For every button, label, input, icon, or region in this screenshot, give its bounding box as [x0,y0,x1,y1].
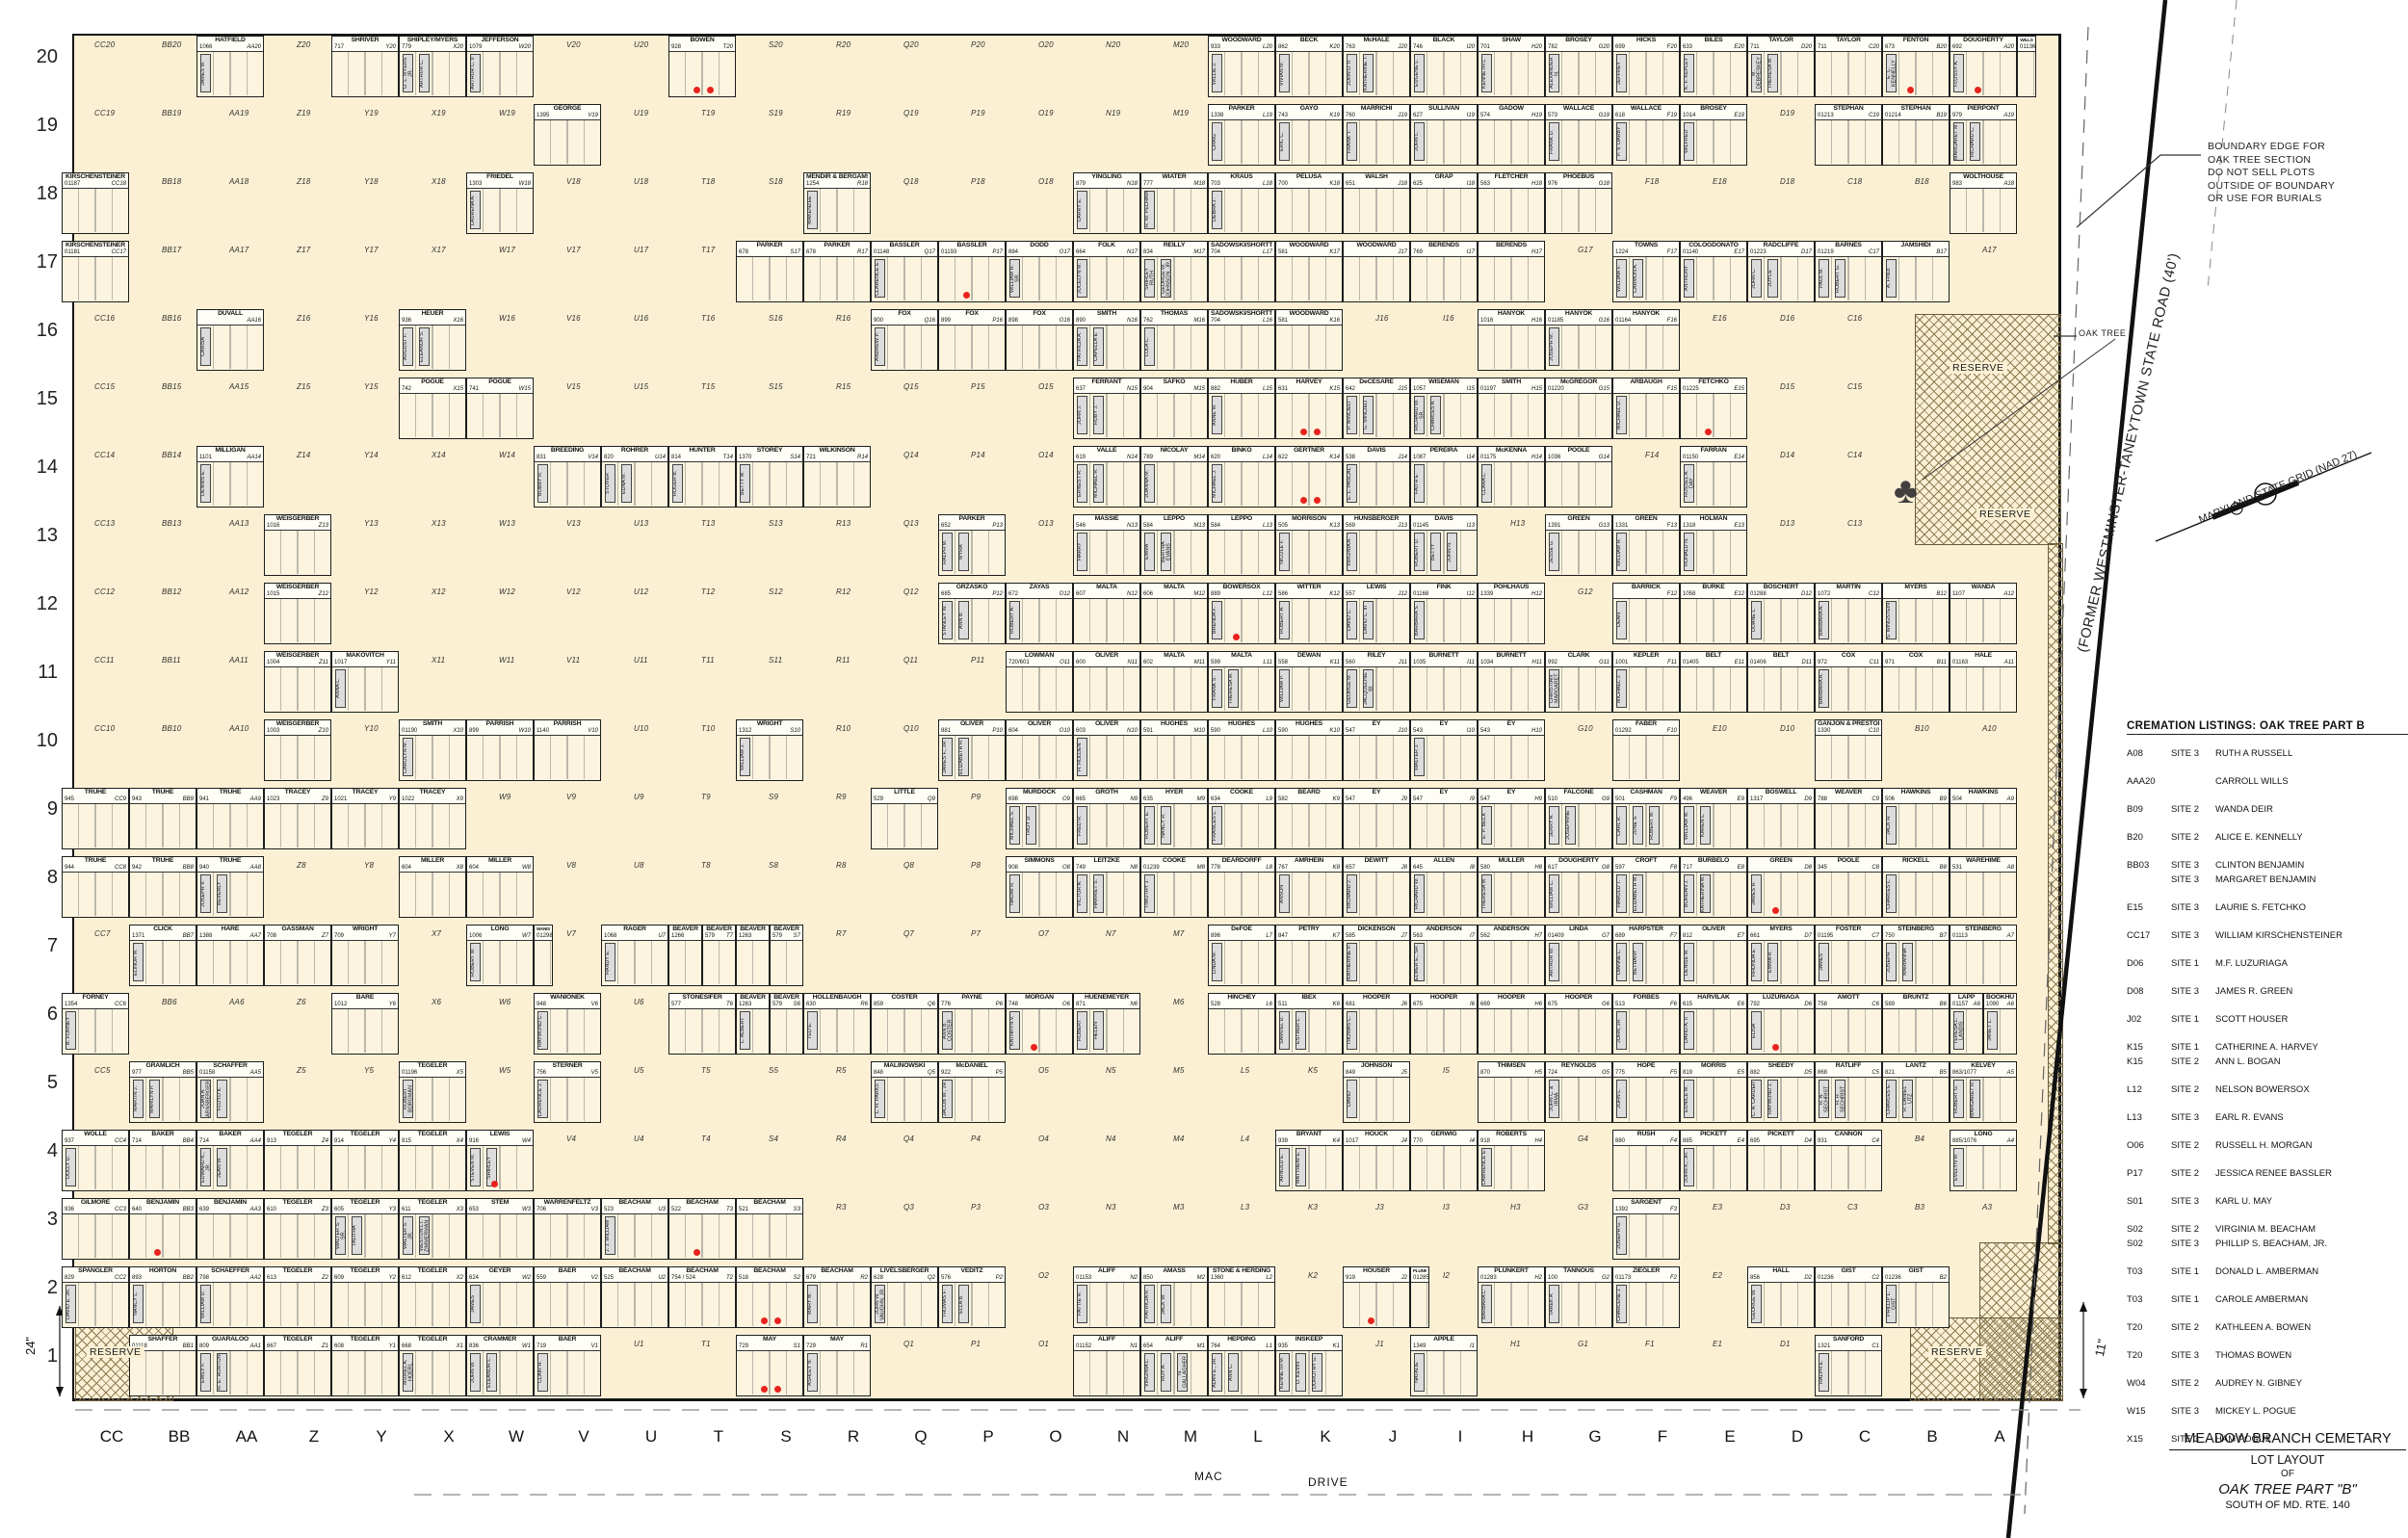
plot-grid-reference: I9 [1470,796,1475,803]
plot-grid-reference: G16 [1599,318,1610,325]
cell-label: G17 [1578,246,1593,254]
plot-grid-reference: CC9 [115,796,126,803]
plot-family-name: WEISGERBER [267,515,328,523]
plot-block: WOODWARD933L20WILLIE J. [1208,36,1275,97]
plot-grid-reference: F9 [1670,796,1677,803]
plot-family-name: GREEN [1615,515,1677,523]
cell-label: BB11 [162,656,181,665]
plot-number: 1371 [132,933,144,940]
plot-number: 1330 [1818,728,1830,735]
plot-block: SMITH890N16PATRICIA A.CAPELLA E. [1073,309,1140,371]
plot-block: IBEX511K6SAMUEL D.ESTHER L. [1275,993,1343,1055]
plot-grid-reference: D2 [1804,1275,1812,1282]
occupant-strip: DENNIS E. [200,464,211,503]
plot-block: DOUGHERTY617G8WILLIAM C. [1545,856,1612,918]
occupant-strip: RALPH M. [942,533,953,571]
plot-family-name: MULLER [1480,857,1542,865]
row-number: 16 [23,320,58,342]
plot-block: FALCONE510G9JERRY A.JOSEPHINE [1545,788,1612,849]
plot-block: DAVIS01145I13ROBERT D.BETTYJOHN N. [1410,514,1478,576]
cell-label: F18 [1645,177,1659,186]
occupant-strip: H. R. SECHRIST [1835,1080,1845,1118]
occupant-strip: CHARLES A. [1430,396,1441,434]
occupant-strip: THERESA M. [1228,669,1239,708]
plot-number: 719 [537,1343,546,1350]
column-letter: L [1221,1427,1295,1447]
plot-number: 510 [1548,796,1557,803]
occupant-strip: DOLLY D. [65,1148,76,1186]
plot-family-name: MORGAN [1008,994,1070,1002]
plot-block: KIRSCHENSTEINER01181CC17 [62,241,129,302]
plot-number: 672 [1008,591,1018,598]
plot-number: 1370 [739,455,751,461]
plot-grid-reference: X5 [457,1070,463,1077]
plot-block: BEAVER579T7 [702,925,736,986]
occupant-strip: L. ALBERT [740,1011,750,1050]
plot-family-name: HAWKINS [1952,789,2014,796]
plot-grid-reference: M17 [1193,249,1205,256]
occupant-strip: NAOMI R. [1009,874,1020,913]
cell-label: BB6 [162,998,177,1006]
column-letter: G [1558,1427,1632,1447]
plot-number: 1017 [1346,1138,1358,1145]
cremation-entry: D06SITE 1M.F. LUZURIAGA [2127,956,2408,971]
occupant-strip: EMMA R. [1767,943,1778,981]
occupant-strip: MYRA [958,533,969,571]
occupant-strip: MAKENZEE [807,191,818,229]
plot-block: ROHRER820U14STOVEREDNA M. [601,446,668,508]
column-letter: Q [884,1427,957,1447]
plot-number: 880 [1615,1138,1625,1145]
plot-family-name: EY [1346,720,1407,728]
plot-block: WEAVER496E9WILLIAM M.KAREN L. [1680,788,1747,849]
occupant-strip: ESTHER L. [1296,1011,1306,1050]
occupant-strip: ARNOLD E. [1279,1148,1290,1186]
plot-block: GRZASKO685P12STANLEY W.ANN B. [938,583,1006,644]
plot-block: BEACHAM525U2 [601,1266,668,1328]
cremation-entry: L12SITE 2NELSON BOWERSOX [2127,1082,2408,1097]
plot-family-name: AMASS [1143,1267,1205,1275]
plot-number: 525 [604,1275,614,1282]
plot-block: STEINBERG750B7JOSEPHMARIANNA [1882,925,1950,986]
plot-grid-reference: Y3 [389,1207,396,1213]
plot-grid-reference: B17 [1936,249,1947,256]
plot-number: 746 [1413,44,1423,51]
row-number: 11 [23,662,58,684]
plot-block: BEAVER1263L. ALBERT [736,993,770,1055]
plot-family-name: BURBELO [1683,857,1744,865]
plot-block: BEACHAM521S3 [736,1198,803,1260]
plot-grid-reference: Z9 [322,796,328,803]
plot-number: 814 [671,455,681,461]
occupant-strip: LAURENCE J. [537,1080,548,1118]
plot-block: WEAVER788C9 [1815,788,1882,849]
plot-number: 521 [739,1207,748,1213]
plot-family-name: WEISGERBER [267,652,328,660]
plot-family-name: TRACEY [402,789,463,796]
plot-block: CANNON931C4 [1815,1130,1882,1191]
plot-number: 789 [1143,455,1153,461]
plot-grid-reference: J5 [1401,1070,1407,1077]
cell-label: C16 [1847,314,1862,323]
plot-family-name: BEAVER [772,994,800,1002]
occupant-strip: ALAN E., JR. [1212,1353,1222,1392]
plot-grid-reference: S14 [790,455,800,461]
plot-grid-reference: N17 [1127,249,1138,256]
plot-number: 678 [739,249,748,256]
occupant-strip: NANCY R. [1161,806,1171,845]
plot-grid-reference: I13 [1467,523,1475,530]
plot-family-name: SIMMONS [1008,857,1070,865]
plot-block: LIVELSBERGER628Q2JOHN W. VAUGHN, JR. [871,1266,938,1328]
plot-family-name: TEGELER [334,1199,396,1207]
plot-grid-reference: F20 [1667,44,1677,51]
plot-grid-reference: A4 [2007,1138,2014,1145]
plot-number: 1079 [469,44,482,51]
plot-grid-reference: Q17 [925,249,935,256]
cell-label: V7 [566,929,576,938]
cell-label: S12 [769,587,783,596]
plot-number: 870 [1480,1070,1490,1077]
cell-label: U10 [634,724,648,733]
plot-family-name: PARKER [1211,105,1272,113]
plot-number: 574 [1480,113,1490,119]
plot-grid-reference: I11 [1467,660,1475,666]
plot-number: 518 [739,1275,748,1282]
occupant-strip: DAVID C. [1347,601,1357,639]
plot-family-name: GAYO [1278,105,1340,113]
cell-label: O1 [1038,1340,1049,1348]
plot-number: 750 [1885,933,1895,940]
occupant-strip: KATHERINA M. [1700,874,1711,913]
plot-family-name: EY [1413,720,1475,728]
plot-family-name: MILLIGAN [199,447,261,455]
plot-number: 1392 [1615,1207,1628,1213]
column-letter: X [412,1427,485,1447]
plot-block: SADOWSKI/SHORTT704L16 [1208,309,1275,371]
plot-grid-reference: R6 [860,1002,868,1008]
plot-block: HOPE775F5JOHN L. [1612,1061,1680,1123]
plot-family-name: BOOKHULTZ [1986,994,2014,1002]
plot-block: BARE1012Y6 [331,993,399,1055]
plot-number: 916 [469,1138,479,1145]
plot-block: HOOPER669H6 [1478,993,1545,1055]
cell-label: O15 [1038,382,1054,391]
occupant-strip: J. J. WILLIAM [605,1216,615,1255]
occupant-strip: ARTHUR W. [1549,943,1559,981]
plot-grid-reference: CC4 [115,1138,126,1145]
plot-grid-reference: A20 [2003,44,2014,51]
plot-block: MAKOVITCH1017Y11ANNA L. [331,651,399,713]
plot-number: 764 [1211,1343,1220,1350]
plot-number: 1035 [1413,660,1426,666]
plot-number: 831 [537,455,546,461]
plot-number: 01196 [402,1070,417,1077]
cell-label: Z5 [297,1066,306,1075]
plot-number: 849 [1346,1070,1355,1077]
plot-grid-reference: T6 [726,1002,733,1008]
cell-label: U11 [634,656,648,665]
plot-block: HUNTER814T14ROGER B. [668,446,736,508]
plot-block: FOLK664N17JOCELYN M. [1073,241,1140,302]
plot-family-name: GASSMAN [267,925,328,933]
plot-grid-reference: CC2 [115,1275,126,1282]
plot-grid-reference: H15 [1531,386,1542,393]
plot-number: 862 [1278,44,1288,51]
plot-number: 777 [1143,181,1153,188]
cell-label: D15 [1780,382,1794,391]
reserve-zone [2048,543,2063,1244]
occupant-strip: RUSSEL A. DAY [1684,464,1694,503]
plot-family-name: WRIGHT [334,925,396,933]
plot-number: 1066 [199,44,212,51]
column-letter: I [1424,1427,1497,1447]
plot-number: 01193 [941,249,956,256]
row-number: 6 [23,1004,58,1026]
plot-family-name: SHEEDY [1750,1062,1812,1070]
plot-family-name: DAVIS [1413,515,1475,523]
cell-label: S9 [769,793,778,801]
plot-grid-reference: AA7 [250,933,261,940]
plot-grid-reference: A12 [2003,591,2014,598]
plot-grid-reference: M11 [1194,660,1205,666]
plot-number: 01187 [65,181,80,188]
plot-grid-reference: F7 [1670,933,1677,940]
plot-family-name: BENJAMIN [199,1199,261,1207]
plot-number: 505 [1278,523,1288,530]
plot-family-name: HUNTER [671,447,733,455]
plot-block: HARE1388AA7 [196,925,264,986]
cell-label: W19 [499,109,515,117]
plot-family-name: JAMSHIDI [1885,242,1947,249]
plot-number: 01145 [1413,523,1428,530]
plot-grid-reference: H16 [1531,318,1542,325]
plot-grid-reference: K20 [1329,44,1340,51]
burial-marker-dot [694,87,700,93]
cell-label: BB19 [162,109,181,117]
plot-block: WEISGERBER1004Z11 [264,651,331,713]
plot-grid-reference: P12 [992,591,1003,598]
plot-family-name: WANDA [1952,584,2014,591]
plot-grid-reference: N16 [1127,318,1138,325]
plot-number: 767 [1278,865,1288,872]
plot-family-name: DAVIS [1346,447,1407,455]
plot-family-name: BEAVER [739,994,767,1002]
occupant-strip: FLOSSY A. [1953,54,1964,92]
cell-label: U16 [634,314,648,323]
plot-number: 1058 [1683,591,1695,598]
plot-block: PARRISH1140V10 [534,719,601,781]
occupant-strip: JAMES [470,1285,481,1323]
occupant-strip: G. MINCIELI [1363,396,1374,434]
plot-block: LEPPO584M13EMMABERTHA EVANS [1140,514,1208,576]
occupant-strip: ANNE M. [1212,396,1222,434]
cell-label: S13 [769,519,783,528]
plot-grid-reference: AA3 [250,1207,261,1213]
plot-family-name: MYERS [1885,584,1947,591]
occupant-strip: HELEN [1093,1011,1104,1050]
plot-block: HANYOK01164F16 [1612,309,1680,371]
plot-grid-reference: X1 [457,1343,463,1350]
plot-number: 681 [1346,1002,1355,1008]
plot-grid-reference: E9 [1738,796,1744,803]
plot-block: FORNEY1354CC6B. FORNEY [62,993,129,1055]
occupant-strip: ROBERT A. [1279,601,1290,639]
plot-number: 569 [1346,523,1355,530]
plot-block: WOLLE937CC4DOLLY D. [62,1130,129,1191]
plot-family-name: FORBES [1615,994,1677,1002]
reserve-zone [1910,1317,2063,1401]
plot-family-name: STEPHAN [1885,105,1947,113]
plot-grid-reference: H6 [1534,1002,1542,1008]
plot-grid-reference: L7 [1266,933,1272,940]
cell-label: S4 [769,1134,778,1143]
boundary-note-line: BOUNDARY EDGE FOR [2208,141,2335,154]
occupant-strip: BETTY [1430,533,1441,571]
plot-block: HORTON893BB2NANCY L. [129,1266,196,1328]
plot-block: TEGELER610Z3 [264,1198,331,1260]
plot-number: 558 [1278,660,1288,666]
map-area [72,34,2061,1401]
plot-block: TEGELER01196X5ROBERT BORGMAN [399,1061,466,1123]
plot-family-name: LUZURIAGA [1750,994,1812,1002]
plot-block: SHRIVER717Y20 [331,36,399,97]
plot-grid-reference: D9 [1804,796,1812,803]
plot-family-name: LOWMAN [1008,652,1070,660]
plot-family-name: OLIVER [1683,925,1744,933]
plot-grid-reference: H9 [1534,796,1542,803]
cell-label: O5 [1038,1066,1049,1075]
reserve-label: RESERVE [1976,508,2034,520]
plot-grid-reference: J15 [1398,386,1407,393]
occupant-strip: ELISA [1751,1011,1762,1050]
cell-label: P15 [971,382,985,391]
cell-label: M5 [1173,1066,1185,1075]
plot-number: 584 [1143,523,1153,530]
plot-grid-reference: P13 [992,523,1003,530]
plot-grid-reference: P16 [992,318,1003,325]
plot-family-name: RAGER [604,925,666,933]
plot-number: 908 [1008,865,1018,872]
occupant-strip: FRANCES L. [1212,806,1222,845]
cell-label: M3 [1173,1203,1185,1212]
plot-family-name: LEPPO [1143,515,1205,523]
occupant-strip: RHONDA E. [1751,943,1762,981]
plot-grid-reference: K12 [1329,591,1340,598]
plot-family-name: LONG [1952,1131,2014,1138]
cell-label: G4 [1578,1134,1588,1143]
plot-family-name: CLARK [1548,652,1610,660]
plot-block: ALLEN645I8RICHARD W. [1410,856,1478,918]
plot-grid-reference: G9 [1602,796,1610,803]
cell-label: G1 [1578,1340,1588,1348]
cemetery-lot-layout-drawing: ♣ BOUNDARY EDGE FOR OAK TREE SECTION DO … [0,0,2408,1538]
plot-family-name: THIMSEN [1480,1062,1542,1070]
column-letter: R [817,1427,890,1447]
cell-label: D13 [1780,519,1794,528]
plot-number: 809 [199,1343,209,1350]
plot-family-name: TEGELER [402,1062,463,1070]
occupant-strip: RICHARD J. [1347,874,1357,913]
plot-grid-reference: BB7 [183,933,194,940]
plot-block: THOMAS762M16LULA C. [1140,309,1208,371]
occupant-strip: P. V. DARBY [1616,122,1627,161]
plot-number: 918 [1480,1138,1490,1145]
plot-family-name: HARE [199,925,261,933]
plot-block: THIMSEN870H5 [1478,1061,1545,1123]
plot-block: LOWMAN720/601O11 [1006,651,1073,713]
plot-grid-reference: AA5 [250,1070,261,1077]
cell-label: BB12 [162,587,181,596]
plot-number: 881 [941,728,951,735]
plot-family-name: LAPP [1952,994,1980,1002]
plot-family-name: COLOGDONATO [1683,242,1744,249]
plot-grid-reference: D6 [1804,1002,1812,1008]
plot-number: 760 [1346,113,1355,119]
plot-family-name: MASSIE [1076,515,1138,523]
plot-family-name: FOLK [1076,242,1138,249]
cell-label: Q4 [903,1134,914,1143]
cell-label: W13 [499,519,515,528]
plot-block: HEPDING764L1ALAN E., JR.ANN C. [1208,1335,1275,1396]
plot-block: GROTH665N9FRED R. [1073,788,1140,849]
row-number: 18 [23,183,58,205]
plot-block: COX972C11BARBARA A. [1815,651,1882,713]
occupant-strip: TAREK A. [1549,1285,1559,1323]
plot-block: McDANIEL922P5JACOB W., JR. [938,1061,1006,1123]
plot-number: 01405 [1683,660,1699,666]
plot-grid-reference: X15 [453,386,463,393]
plot-block: WISEMAN1057I15RICHARD W. SR.CHARLES A. [1410,378,1478,439]
plot-family-name: MALTA [1211,652,1272,660]
plot-family-name: LANTZ [1885,1062,1947,1070]
cell-label: V18 [566,177,581,186]
occupant-strip: MARILYN P. [149,1080,160,1118]
plot-family-name: MALINOWSKI [874,1062,935,1070]
plot-number: 609 [334,1275,344,1282]
plot-block: GEORGE1395V19 [534,104,601,166]
plot-family-name: BEACHAM [671,1199,733,1207]
plot-grid-reference: N12 [1127,591,1138,598]
plot-grid-reference: J8 [1401,865,1407,872]
plot-number: 884 [1008,249,1018,256]
plot-number: 882 [1211,386,1220,393]
plot-number: 573 [1548,113,1557,119]
plot-family-name: BEACHAM [671,1267,733,1275]
plot-number: 685 [941,591,951,598]
plot-family-name: BAER [537,1336,598,1343]
cell-label: L5 [1241,1066,1249,1075]
column-letter: J [1356,1427,1429,1447]
plot-number: 834 [1143,249,1153,256]
plot-block: WEISGERBER1016Z13 [264,514,331,576]
plot-block: WOODWARD581K16 [1275,309,1343,371]
cell-label: Z18 [297,177,310,186]
plot-grid-reference: D5 [1804,1070,1812,1077]
plot-block: LONG885/1076A4EVELYN M. [1950,1130,2017,1191]
plot-number: 637 [1076,386,1086,393]
plot-family-name: HOOPER [1346,994,1407,1002]
plot-number: 01140 [1683,249,1698,256]
cell-label: E1 [1713,1340,1722,1348]
plot-block: STONESIFER577T6 [668,993,736,1055]
cell-label: Q12 [903,587,919,596]
occupant-strip: ELMER E., SR. [1414,943,1425,981]
plot-block: COOKE01239M8TIMOTHY J. [1140,856,1208,918]
plot-block: BENJAMIN639AA3 [196,1198,264,1260]
cell-label: V13 [566,519,581,528]
occupant-strip: EUGENE L. [1414,54,1425,92]
